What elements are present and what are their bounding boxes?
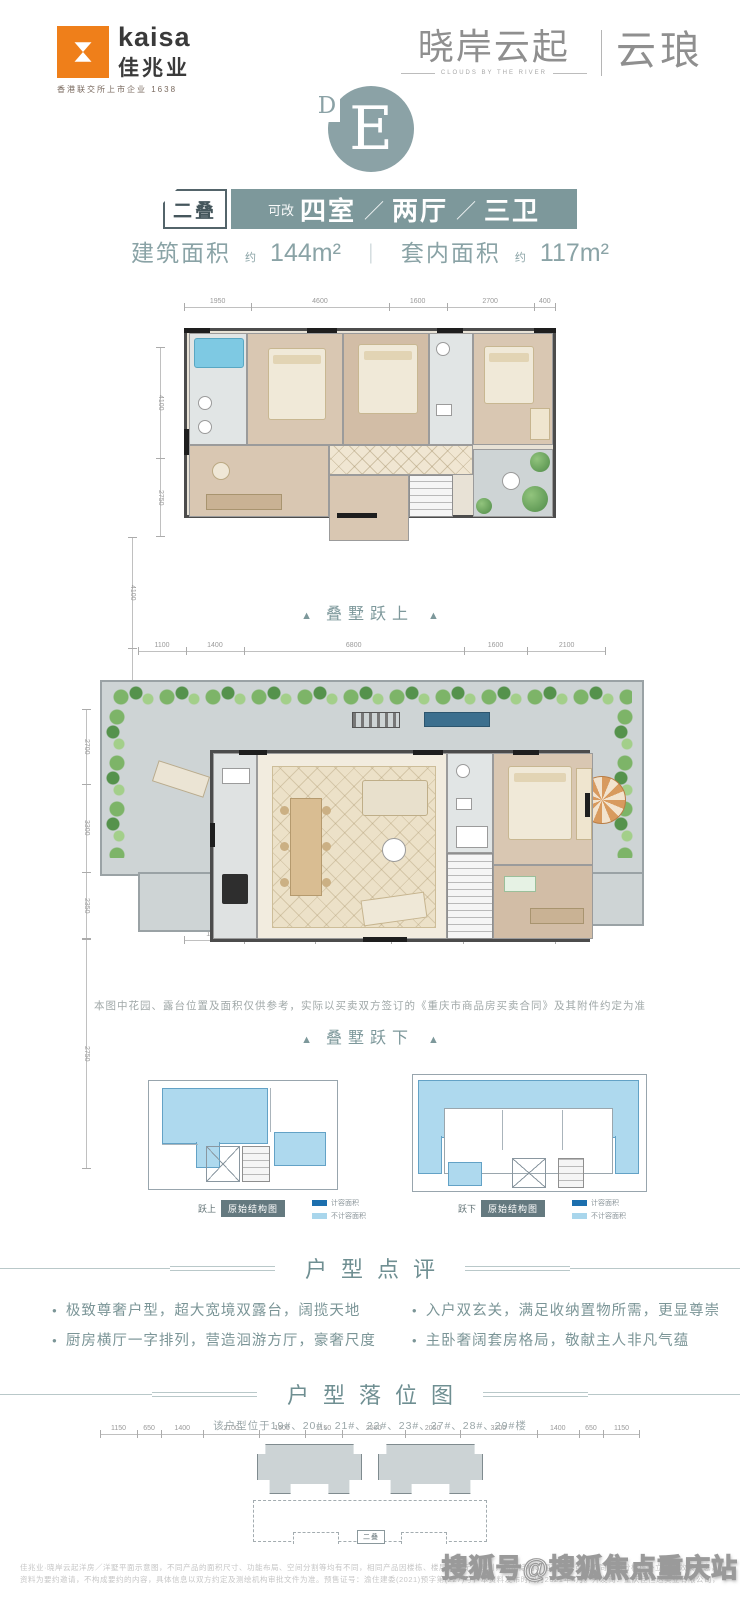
plan-upper-dims-top: 1950460016002700400 (184, 298, 556, 311)
brochure-page: kaisa 佳兆业 香港联交所上市企业 1638 晓岸云起 CLOUDS BY … (0, 0, 740, 1601)
floor-plan-lower: 11001400680016002100 270033002350 2750 (80, 636, 660, 976)
site-notch (401, 1532, 447, 1544)
location-title-row: 户型落位图 (0, 1378, 740, 1410)
bedroom-3 (473, 333, 553, 445)
site-notch (293, 1532, 339, 1544)
legend-label: 计容面积 (331, 1198, 359, 1208)
wall-segment (184, 328, 210, 333)
decor-double-line (483, 1392, 588, 1397)
closet-strip (329, 445, 473, 475)
stack-type-tag: 二叠 (163, 189, 227, 229)
review-bullets-left-item: 极致尊奢户型，超大宽境双露台，阔揽天地 (52, 1296, 376, 1326)
dining-table (290, 798, 322, 896)
legend-label: 不计容面积 (591, 1211, 626, 1221)
structure-diagram-upper (148, 1080, 338, 1190)
kitchen-sink (222, 768, 250, 784)
caption-badge: 原始结构图 (221, 1200, 285, 1217)
review-title: 户型点评 (305, 1252, 449, 1284)
triangle-icon: ▲ (428, 610, 439, 622)
brand-name-en: kaisa (118, 24, 191, 50)
plan-lower-dims-top-item: 1600 (464, 642, 528, 655)
wall-segment (413, 750, 443, 755)
plan-lower-dims-top: 11001400680016002100 (138, 642, 606, 655)
plant-border-left (106, 708, 130, 858)
dining-chair (280, 806, 289, 815)
site-marker: 二叠 (357, 1530, 385, 1544)
sink (456, 764, 470, 778)
bathroom-main (447, 753, 493, 853)
cooktop (222, 874, 248, 904)
spec-prefix: 可改 (268, 200, 294, 219)
unit-emblem-circle: E (328, 86, 414, 172)
partition (162, 1144, 198, 1145)
approx-mark: 约 (245, 249, 256, 265)
review-bullets: 极致尊奢户型，超大宽境双露台，阔揽天地厨房横厅一字排列，营造洄游方厅，豪奢尺度 … (52, 1296, 712, 1356)
lower-left-porch (138, 872, 214, 932)
site-plan: 二叠 (245, 1440, 495, 1548)
plan-lower-dims-top-item: 6800 (244, 642, 464, 655)
decor-double-line (152, 1392, 257, 1397)
location-title: 户型落位图 (287, 1378, 467, 1410)
coffee-table (382, 838, 406, 862)
review-bullets-left-item: 厨房横厅一字排列，营造洄游方厅，豪奢尺度 (52, 1326, 376, 1356)
lounge-chair (152, 760, 210, 798)
legend-label: 不计容面积 (331, 1211, 366, 1221)
desk (530, 908, 584, 924)
plan-lower-dims-top-item: 1100 (138, 642, 186, 655)
kitchen (213, 753, 257, 939)
brand-name-cn: 佳兆业 (118, 52, 190, 82)
elevator-shaft (512, 1158, 546, 1188)
sink (436, 342, 450, 356)
terrace-upper (473, 449, 553, 517)
legend-swatch-light (572, 1213, 587, 1219)
dining-chair (322, 842, 331, 851)
partition (270, 1088, 271, 1132)
plan-lower-dims-top-item: 1400 (186, 642, 244, 655)
decor-line (0, 1394, 152, 1395)
gym-equipment (352, 712, 400, 728)
wall-segment (513, 750, 539, 755)
wall-segment (184, 429, 189, 455)
legend-label: 计容面积 (591, 1198, 619, 1208)
dining-chair (322, 806, 331, 815)
plant-border-top (112, 686, 632, 710)
master-bedroom (493, 753, 593, 865)
location-subtitle: 该户型位于19#、20#、21#、22#、23#、27#、28#、29#楼 (0, 1418, 740, 1433)
built-area-value: 144m² (270, 239, 341, 268)
wall-segment (437, 328, 463, 333)
bedroom-1 (247, 333, 343, 445)
plan-lower-dims-left-item: 3300 (80, 784, 93, 872)
study (493, 865, 593, 939)
round-table (502, 472, 520, 490)
project-name: 晓岸云起 (418, 28, 570, 68)
wall-segment (307, 328, 337, 333)
bed (358, 344, 418, 414)
spec-separator: ／ (364, 195, 384, 224)
unit-emblem-sub-letter: D (314, 90, 340, 122)
built-area-label: 建筑面积 (131, 234, 231, 268)
structure-upper-legend: 计容面积 不计容面积 (312, 1198, 366, 1221)
plant (530, 452, 550, 472)
building-footprint (378, 1444, 483, 1494)
spec-baths: 三卫 (484, 191, 540, 228)
terrace-area (418, 1136, 442, 1174)
caption-badge: 原始结构图 (481, 1200, 545, 1217)
armchair (212, 462, 230, 480)
bedroom-2 (343, 333, 429, 445)
decor-double-line (465, 1266, 570, 1271)
review-bullets-right: 入户双玄关，满足收纳置物所需，更显尊崇主卧奢阔套房格局，敬献主人非凡气蕴 (412, 1296, 720, 1356)
void-area (448, 1162, 482, 1186)
caption-prefix: 跃下 (458, 1202, 476, 1215)
bed (508, 766, 572, 840)
plan-lower-dims-right-item: 2750 (80, 939, 93, 1169)
wall-segment (363, 937, 407, 942)
plan-upper-dims-top-item: 1950 (184, 298, 251, 311)
plan-upper-body (184, 328, 556, 518)
dining-chair (322, 878, 331, 887)
caption-prefix: 跃上 (198, 1202, 216, 1215)
bathroom-1 (189, 333, 247, 445)
staircase (447, 853, 493, 939)
caption-text: 叠墅跃上 (326, 606, 414, 623)
caption-text: 叠墅跃下 (326, 1030, 414, 1047)
building-footprint (257, 1444, 362, 1494)
living-dining-room (257, 753, 447, 939)
structure-diagram-lower (412, 1074, 647, 1192)
plant (522, 486, 548, 512)
plan-lower-caption: ▲叠墅跃下▲ (0, 1024, 740, 1048)
decor-line (570, 1268, 740, 1269)
dining-chair (280, 842, 289, 851)
review-bullets-right-item: 入户双玄关，满足收纳置物所需，更显尊崇 (412, 1296, 720, 1326)
structure-lower-legend: 计容面积 不计容面积 (572, 1198, 626, 1221)
legend-swatch-light (312, 1213, 327, 1219)
plan-lower-dims-top-item: 2100 (527, 642, 606, 655)
plan-upper-dims-left-item: 4100 (154, 347, 167, 458)
elevator-shaft (206, 1146, 240, 1182)
review-bullets-right-item: 主卧奢阔套房格局，敬献主人非凡气蕴 (412, 1326, 720, 1356)
exercise-mat (424, 712, 490, 727)
plan-lower-dims-left: 270033002350 (80, 709, 93, 939)
plant (476, 498, 492, 514)
plan-upper-dims-top-item: 2700 (447, 298, 534, 311)
partition (562, 1110, 563, 1150)
plan-upper-caption: ▲叠墅跃上▲ (0, 600, 740, 624)
inner-area-value: 117m² (540, 239, 609, 268)
planter (504, 876, 536, 892)
decor-line (0, 1268, 170, 1269)
plan-upper-dims-right-item: 4100 (126, 537, 139, 648)
decor-double-line (170, 1266, 275, 1271)
triangle-icon: ▲ (301, 1034, 312, 1046)
sofa (362, 780, 428, 816)
wall-segment (210, 823, 215, 847)
layout-spec-bar: 可改 四室 ／ 两厅 ／ 三卫 (231, 189, 577, 229)
wall-segment (534, 328, 556, 333)
bathtub (194, 338, 244, 368)
structure-upper-caption: 跃上 原始结构图 (198, 1200, 285, 1217)
hourglass-icon (66, 35, 100, 69)
plan-disclaimer: 本图中花园、露台位置及面积仅供参考，实际以买卖双方签订的《重庆市商品房买卖合同》… (0, 998, 740, 1013)
review-bullets-left: 极致尊奢户型，超大宽境双露台，阔揽天地厨房横厅一字排列，营造洄游方厅，豪奢尺度 (52, 1296, 376, 1356)
area-summary: 建筑面积约144m² ｜ 套内面积约117m² (0, 234, 740, 268)
lower-right-porch (588, 872, 644, 926)
plan-upper-dims-left: 41002750 (154, 347, 167, 537)
plan-lower-dims-left-item: 2700 (80, 709, 93, 784)
plan-lower-dims-right: 2750 (80, 939, 93, 1169)
toilet (198, 420, 212, 434)
kaisa-logo (57, 26, 109, 78)
hallway (329, 475, 409, 541)
lower-corridor (189, 445, 329, 517)
wall-segment (239, 750, 267, 755)
brand-divider (601, 30, 602, 76)
spec-separator: ／ (456, 195, 476, 224)
void-area (162, 1088, 268, 1144)
plan-upper-dims-left-item: 2750 (154, 458, 167, 537)
brand-tagline: 香港联交所上市企业 1638 (57, 84, 177, 95)
area-divider: ｜ (361, 238, 381, 267)
project-series: 云琅 (616, 28, 704, 74)
stair-shaft (242, 1146, 270, 1182)
spec-halls: 两厅 (392, 191, 448, 228)
toilet (436, 404, 452, 416)
bathroom-2 (429, 333, 473, 445)
partition (502, 1110, 503, 1150)
toilet (456, 798, 472, 810)
wall-segment (337, 513, 377, 518)
terrace-area (615, 1136, 639, 1174)
triangle-icon: ▲ (301, 610, 312, 622)
wardrobe (530, 408, 550, 440)
project-brand: 晓岸云起 CLOUDS BY THE RIVER 云琅 (401, 28, 704, 76)
staircase (409, 475, 453, 517)
plan-upper-dims-top-item: 4600 (251, 298, 388, 311)
inner-area-label: 套内面积 (401, 234, 501, 268)
triangle-icon: ▲ (428, 1034, 439, 1046)
plan-lower-body (210, 750, 590, 942)
tv-cabinet (206, 494, 282, 510)
project-subtitle: CLOUDS BY THE RIVER (401, 70, 587, 76)
legend-swatch-dark (572, 1200, 587, 1206)
plan-lower-dims-left-item: 2350 (80, 872, 93, 939)
watermark: 搜狐号@搜狐焦点重庆站 (442, 1548, 738, 1585)
bed (268, 348, 326, 420)
sink (198, 396, 212, 410)
plan-upper-dims-top-item: 400 (534, 298, 556, 311)
stair-shaft (558, 1158, 584, 1188)
decor-line (588, 1394, 740, 1395)
vanity (456, 826, 488, 848)
dining-chair (280, 878, 289, 887)
plan-upper-dims-top-item: 1600 (389, 298, 447, 311)
structure-lower-caption: 跃下 原始结构图 (458, 1200, 545, 1217)
legend-swatch-dark (312, 1200, 327, 1206)
bed (484, 346, 534, 404)
void-area (274, 1132, 326, 1166)
wall-segment (585, 793, 590, 817)
spec-rooms: 四室 (300, 191, 356, 228)
review-title-row: 户型点评 (0, 1252, 740, 1284)
approx-mark: 约 (515, 249, 526, 265)
floor-plan-upper: 1950460016002700400 41002750 41002750 (140, 292, 600, 592)
